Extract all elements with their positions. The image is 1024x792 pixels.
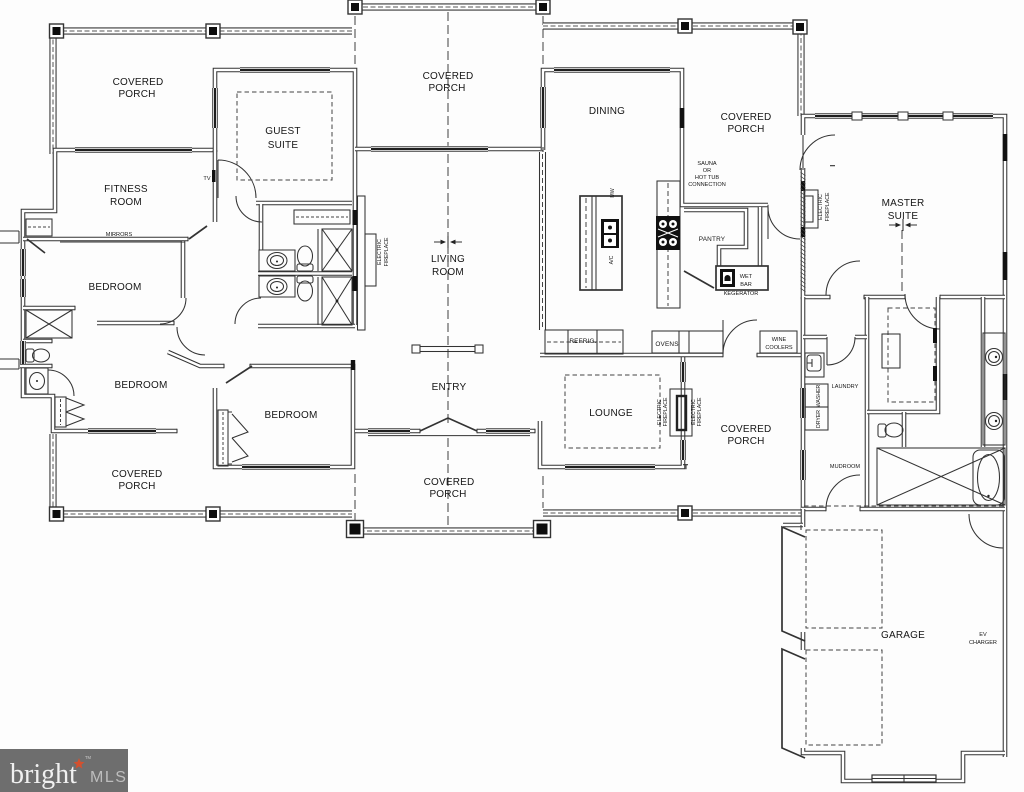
svg-text:BAR: BAR <box>740 282 752 288</box>
svg-text:PORCH: PORCH <box>727 436 764 447</box>
svg-text:PORCH: PORCH <box>118 481 155 492</box>
svg-text:PORCH: PORCH <box>727 124 764 135</box>
svg-text:REFRIG.: REFRIG. <box>569 338 596 345</box>
svg-text:WASHER: WASHER <box>816 384 822 407</box>
svg-text:BEDROOM: BEDROOM <box>114 380 167 391</box>
svg-text:SAUNA: SAUNA <box>697 161 717 167</box>
svg-text:COVERED: COVERED <box>424 477 475 488</box>
svg-text:GUEST: GUEST <box>265 126 300 137</box>
svg-text:FIREPLACE: FIREPLACE <box>663 397 669 426</box>
svg-text:A/C: A/C <box>609 255 615 264</box>
svg-text:bright: bright <box>10 759 77 790</box>
svg-text:SUITE: SUITE <box>268 140 299 151</box>
svg-text:ENTRY: ENTRY <box>432 382 467 393</box>
svg-text:MLS: MLS <box>90 769 127 786</box>
svg-text:DRYER: DRYER <box>816 410 822 428</box>
svg-text:TM: TM <box>85 755 92 760</box>
svg-text:LAUNDRY: LAUNDRY <box>832 384 859 390</box>
svg-text:DINING: DINING <box>589 106 625 117</box>
svg-text:ROOM: ROOM <box>110 197 142 208</box>
svg-text:BEDROOM: BEDROOM <box>264 410 317 421</box>
svg-text:COOLERS: COOLERS <box>765 345 793 351</box>
svg-text:CONNECTION: CONNECTION <box>688 182 726 188</box>
svg-text:COVERED: COVERED <box>113 77 164 88</box>
svg-text:LOUNGE: LOUNGE <box>589 408 633 419</box>
svg-text:BEDROOM: BEDROOM <box>88 282 141 293</box>
svg-text:COVERED: COVERED <box>423 71 474 82</box>
svg-text:OR: OR <box>703 168 711 174</box>
svg-text:HOT TUB: HOT TUB <box>695 175 720 181</box>
svg-text:ROOM: ROOM <box>432 267 464 278</box>
svg-text:SUITE: SUITE <box>888 211 919 222</box>
svg-text:FIREPLACE: FIREPLACE <box>384 237 390 266</box>
svg-text:MIRRORS: MIRRORS <box>106 232 133 238</box>
svg-text:TV: TV <box>203 176 210 182</box>
svg-text:FIREPLACE: FIREPLACE <box>825 192 831 221</box>
svg-text:PORCH: PORCH <box>428 83 465 94</box>
svg-text:GARAGE: GARAGE <box>881 630 925 641</box>
svg-text:EV: EV <box>979 632 987 638</box>
svg-text:COVERED: COVERED <box>112 469 163 480</box>
svg-text:FITNESS: FITNESS <box>104 184 148 195</box>
svg-text:PORCH: PORCH <box>429 489 466 500</box>
svg-text:ELECTRIC: ELECTRIC <box>377 239 383 265</box>
svg-text:MASTER: MASTER <box>882 198 925 209</box>
svg-text:MUDROOM: MUDROOM <box>830 464 860 470</box>
svg-text:PORCH: PORCH <box>118 89 155 100</box>
svg-text:KEGERATOR: KEGERATOR <box>724 291 759 297</box>
svg-text:WINE: WINE <box>772 337 787 343</box>
svg-text:CHARGER: CHARGER <box>969 640 997 646</box>
svg-text:ELECTRIC: ELECTRIC <box>818 194 824 220</box>
svg-text:LIVING: LIVING <box>431 254 465 265</box>
svg-text:WET: WET <box>740 274 753 280</box>
svg-text:OVENS: OVENS <box>655 341 678 348</box>
svg-text:FIREPLACE: FIREPLACE <box>697 397 703 426</box>
svg-text:PANTRY: PANTRY <box>699 236 726 243</box>
svg-text:COVERED: COVERED <box>721 112 772 123</box>
svg-text:MW: MW <box>610 188 616 197</box>
svg-text:COVERED: COVERED <box>721 424 772 435</box>
